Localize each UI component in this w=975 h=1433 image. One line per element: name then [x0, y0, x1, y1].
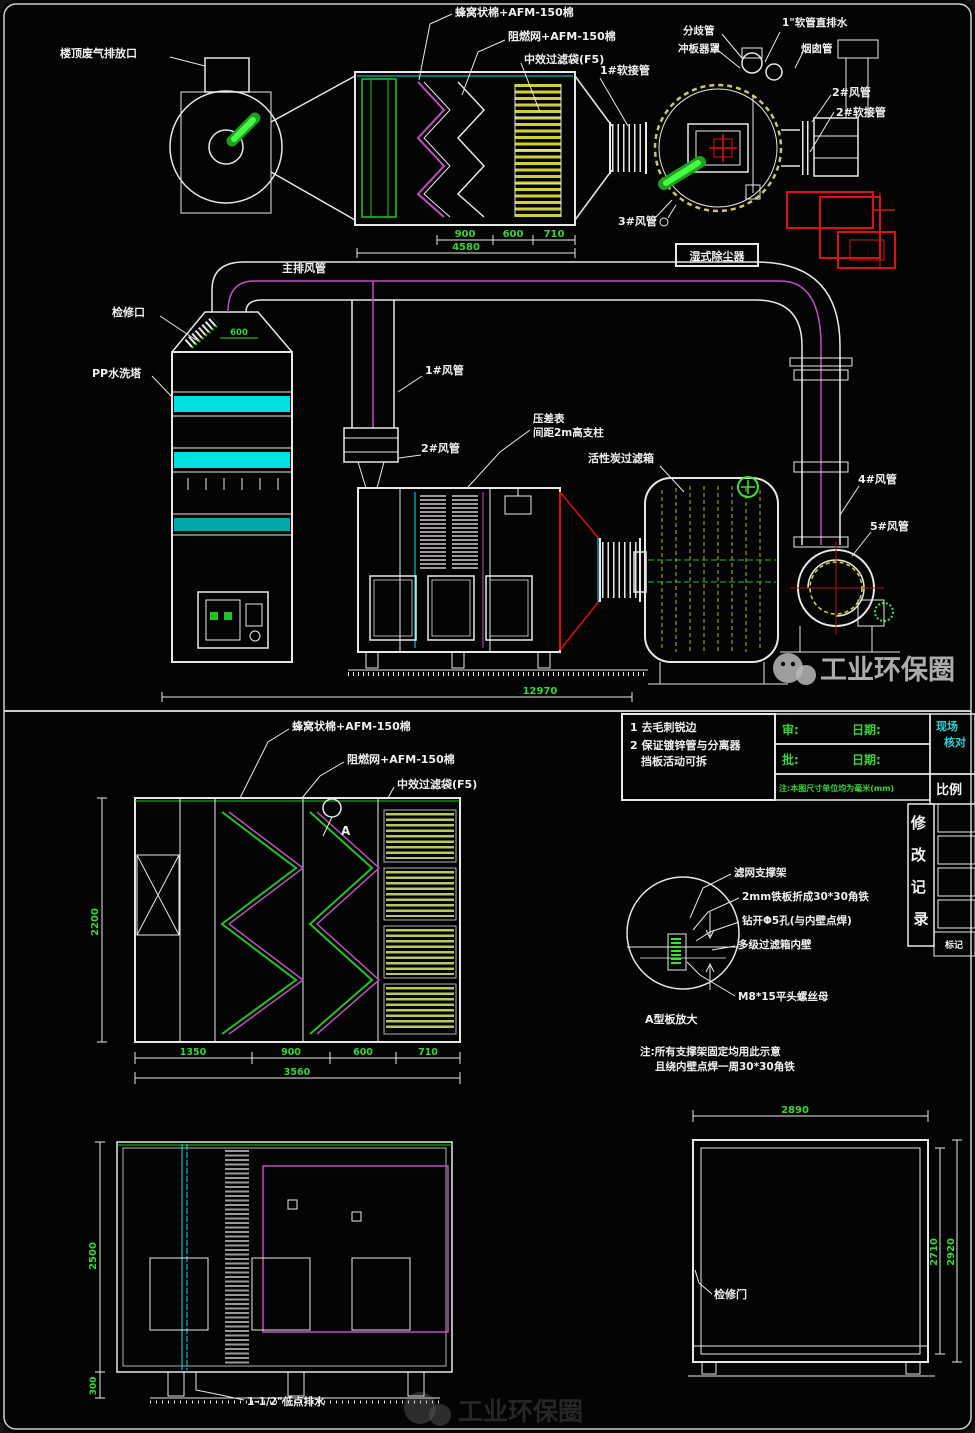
- label-duct2: 2#风管: [421, 441, 460, 455]
- dim-2710: 2710: [929, 1238, 940, 1266]
- detail-note1: 注:所有支撑架固定均用此示意: [640, 1045, 781, 1058]
- label-duct1: 1#风管: [425, 363, 464, 377]
- dim-710: 710: [544, 229, 565, 240]
- label-honeycomb-2: 蜂窝状棉+AFM-150棉: [292, 719, 411, 733]
- label-main-duct: 主排风管: [282, 261, 326, 275]
- label-duct3: 3#风管: [618, 214, 657, 228]
- dim-710b: 710: [418, 1047, 438, 1058]
- field-approve: 批:: [782, 752, 799, 767]
- note-line3: 挡板活动可拆: [641, 754, 707, 768]
- label-angle-iron: 2mm铁板折成30*30角铁: [742, 890, 869, 903]
- label-screw: M8*15平头螺丝母: [738, 990, 829, 1003]
- detail-marker-letter: A: [341, 824, 351, 838]
- label-pp-tower: PP水洗塔: [92, 366, 142, 380]
- dim-900: 900: [455, 229, 476, 240]
- dim-3560: 3560: [284, 1067, 311, 1078]
- detail-caption: A型板放大: [645, 1012, 698, 1026]
- label-soft1: 1#软接管: [600, 63, 650, 77]
- field-mark: 标记: [944, 939, 963, 951]
- label-duct4: 4#风管: [858, 472, 897, 486]
- dim-300: 300: [89, 1377, 99, 1396]
- equipment-tag: 湿式除尘器: [690, 249, 746, 263]
- dim-4580: 4580: [452, 242, 480, 253]
- watermark-text-2: 工业环保圈: [458, 1397, 583, 1426]
- cad-drawing-page: 楼顶废气排放口 蜂窝状棉+AFM-150棉 阻燃网+AFM-150棉 中效过滤袋…: [0, 0, 975, 1433]
- label-roof-outlet: 楼顶废气排放口: [60, 46, 137, 60]
- label-chimney: 烟囱管: [801, 42, 833, 55]
- label-drain: 1-1/2"低点排水: [247, 1395, 325, 1408]
- dim-2920: 2920: [946, 1238, 957, 1266]
- watermark-2: 工业环保圈: [404, 1392, 583, 1426]
- label-flame-net: 阻燃网+AFM-150棉: [508, 29, 616, 43]
- label-honeycomb: 蜂窝状棉+AFM-150棉: [455, 5, 574, 19]
- label-hatch: 检修口: [112, 305, 145, 319]
- note-line2: 2 保证镀锌管与分离器: [630, 738, 741, 752]
- label-hole: 钻开Φ5孔(与内壁点焊): [742, 914, 852, 927]
- drawing-background: [0, 0, 975, 1433]
- dim-12970: 12970: [523, 686, 558, 697]
- label-duct5: 5#风管: [870, 519, 909, 533]
- detail-note2: 且绕内壁点焊一周30*30角铁: [655, 1060, 795, 1073]
- dim-600b: 600: [353, 1047, 373, 1058]
- label-soft2: 2#软接管: [836, 105, 886, 119]
- label-carbon-box: 活性炭过滤箱: [588, 451, 654, 465]
- label-mid-bag-2: 中效过滤袋(F5): [397, 777, 477, 791]
- field-date2: 日期:: [852, 752, 881, 767]
- label-inner-wall: 多级过滤箱内壁: [738, 938, 812, 951]
- dim-2890: 2890: [781, 1105, 809, 1116]
- field-scale: 比例: [936, 782, 962, 798]
- field-green-note: 注:本图尺寸单位均为毫米(mm): [779, 783, 894, 793]
- label-branch: 分歧管: [683, 24, 715, 37]
- dim-2200: 2200: [90, 908, 101, 936]
- dim-600: 600: [503, 229, 524, 240]
- dim-hood-600: 600: [230, 328, 248, 338]
- field-review: 审:: [782, 722, 799, 737]
- cad-canvas: 楼顶废气排放口 蜂窝状棉+AFM-150棉 阻燃网+AFM-150棉 中效过滤袋…: [0, 0, 975, 1433]
- watermark-text: 工业环保圈: [820, 655, 955, 686]
- dim-1350: 1350: [180, 1047, 207, 1058]
- field-corner1: 现场: [936, 719, 958, 733]
- dim-2500: 2500: [88, 1242, 99, 1270]
- note-line1: 1 去毛刺锐边: [630, 720, 697, 734]
- label-drain-hose: 1"软管直排水: [782, 16, 848, 29]
- dim-900b: 900: [281, 1047, 301, 1058]
- label-mid-bag: 中效过滤袋(F5): [524, 52, 604, 66]
- field-date1: 日期:: [852, 722, 881, 737]
- label-duct2-top: 2#风管: [832, 85, 871, 99]
- field-corner2: 核对: [944, 735, 966, 749]
- label-support: 滤网支撑架: [734, 866, 787, 879]
- label-door: 检修门: [714, 1287, 747, 1301]
- label-gauge-2: 间距2m高支柱: [533, 426, 604, 439]
- label-baffle-cover: 冲板器罩: [678, 42, 720, 55]
- label-flame-net-2: 阻燃网+AFM-150棉: [347, 752, 455, 766]
- label-gauge-1: 压差表: [533, 412, 565, 425]
